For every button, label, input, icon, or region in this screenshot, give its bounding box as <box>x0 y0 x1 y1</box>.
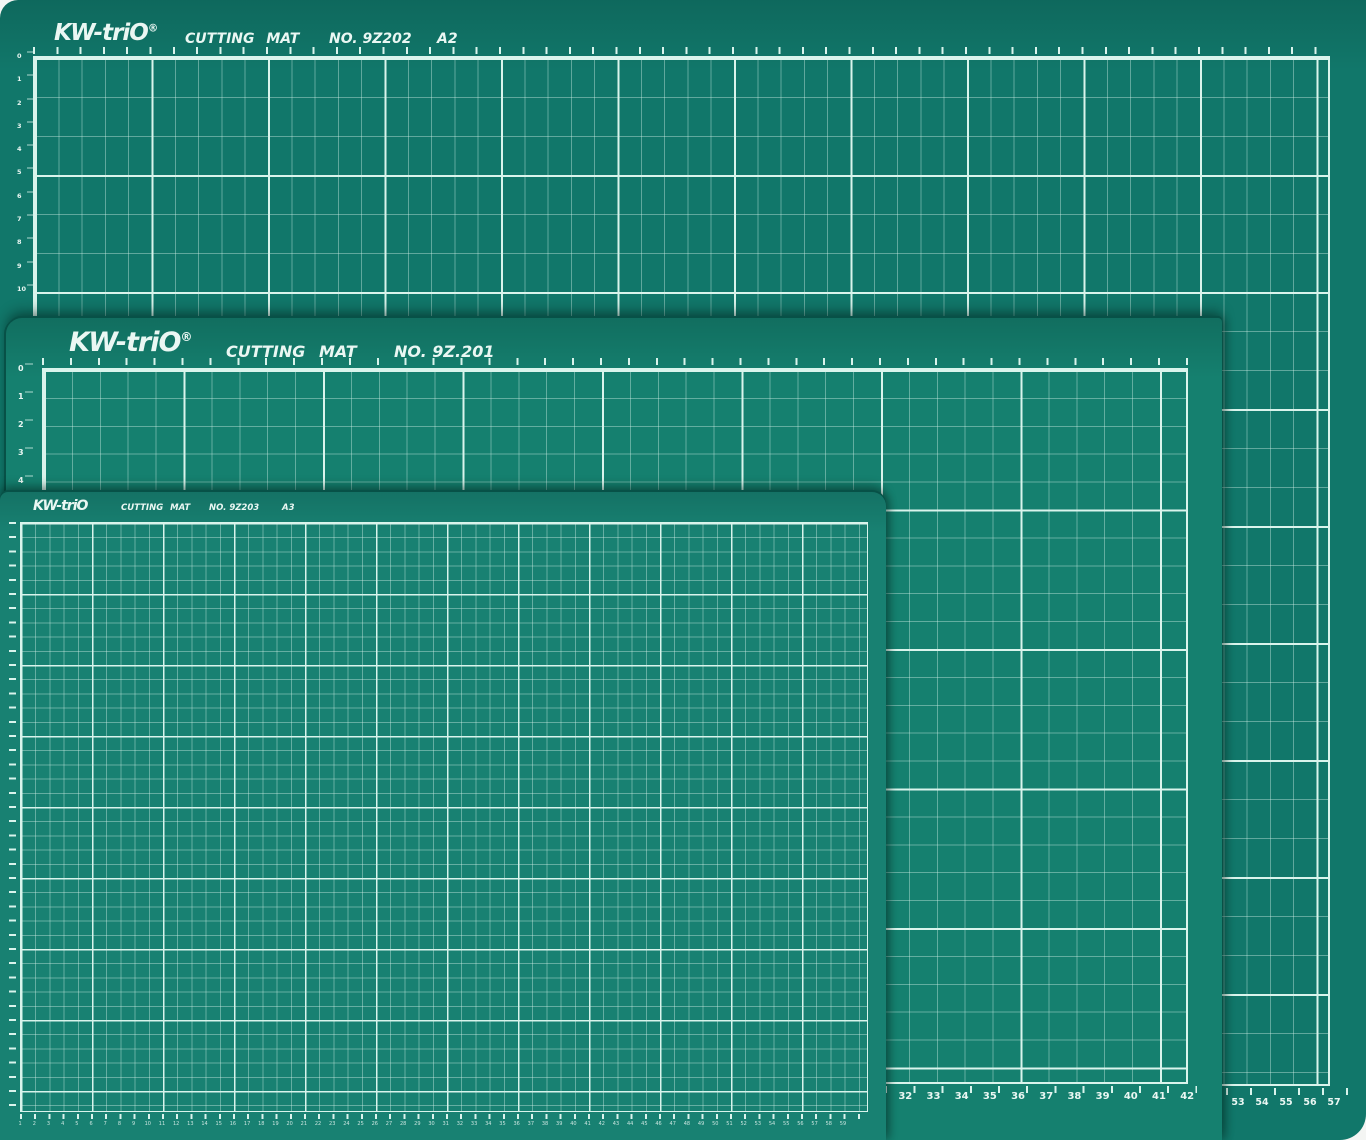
ruler-number: 37 <box>1032 1091 1060 1102</box>
ruler-number: 53 <box>751 1121 765 1127</box>
top-tick-marks-a2 <box>33 47 1330 54</box>
ruler-number: 29 <box>410 1121 424 1127</box>
ruler-number: 22 <box>311 1121 325 1127</box>
ruler-number: 0 <box>17 52 26 75</box>
ruler-number: 55 <box>1274 1097 1298 1108</box>
ruler-number: 10 <box>17 285 26 308</box>
ruler-number: 23 <box>325 1121 339 1127</box>
ruler-number: 52 <box>737 1121 751 1127</box>
ruler-number: 40 <box>1117 1091 1145 1102</box>
ruler-number: 31 <box>439 1121 453 1127</box>
bottom-ruler-a2: 5354555657 <box>1226 1097 1346 1108</box>
ruler-number: 30 <box>424 1121 438 1127</box>
ruler-number: 21 <box>297 1121 311 1127</box>
model-number: NO. 9Z203 <box>209 503 259 513</box>
ruler-number: 19 <box>268 1121 282 1127</box>
ruler-number: 28 <box>396 1121 410 1127</box>
registered-mark: ® <box>180 330 192 344</box>
product-title: CUTTING MAT <box>121 503 190 513</box>
brand-name: KW-triO <box>69 327 180 358</box>
ruler-number: 20 <box>283 1121 297 1127</box>
ruler-number: 26 <box>368 1121 382 1127</box>
ruler-number: 35 <box>976 1091 1004 1102</box>
ruler-number: 42 <box>1173 1091 1201 1102</box>
model-number: NO. 9Z202 <box>329 31 412 47</box>
brand-logo: KW-triO® <box>54 20 158 46</box>
ruler-number: 1 <box>13 1121 27 1127</box>
brand-name: KW-triO <box>33 498 87 514</box>
ruler-number: 35 <box>495 1121 509 1127</box>
ruler-number: 3 <box>18 448 24 476</box>
ruler-number: 39 <box>1089 1091 1117 1102</box>
ruler-number: 24 <box>339 1121 353 1127</box>
ruler-number: 9 <box>17 262 26 285</box>
ruler-number: 27 <box>382 1121 396 1127</box>
ruler-number: 39 <box>552 1121 566 1127</box>
ruler-number: 53 <box>1226 1097 1250 1108</box>
left-tick-marks-a3 <box>9 522 16 1112</box>
ruler-number: 57 <box>1322 1097 1346 1108</box>
ruler-number: 33 <box>467 1121 481 1127</box>
ruler-number: 18 <box>254 1121 268 1127</box>
ruler-number: 7 <box>17 215 26 238</box>
ruler-number: 1 <box>17 75 26 98</box>
ruler-number: 55 <box>779 1121 793 1127</box>
ruler-number: 15 <box>212 1121 226 1127</box>
ruler-number: 6 <box>17 192 26 215</box>
ruler-number: 49 <box>694 1121 708 1127</box>
ruler-number: 58 <box>822 1121 836 1127</box>
top-tick-marks-a1 <box>42 358 1188 365</box>
ruler-number: 46 <box>651 1121 665 1127</box>
bottom-ruler-a3: 1234567891011121314151617181920212223242… <box>13 1121 850 1127</box>
ruler-number: 41 <box>1145 1091 1173 1102</box>
ruler-number: 5 <box>70 1121 84 1127</box>
ruler-number: 13 <box>183 1121 197 1127</box>
ruler-number: 32 <box>453 1121 467 1127</box>
bottom-tick-marks-a2 <box>1226 1088 1348 1095</box>
ruler-number: 54 <box>765 1121 779 1127</box>
ruler-number: 36 <box>1004 1091 1032 1102</box>
ruler-number: 0 <box>18 364 24 392</box>
ruler-number: 40 <box>566 1121 580 1127</box>
ruler-number: 33 <box>919 1091 947 1102</box>
ruler-number: 48 <box>680 1121 694 1127</box>
ruler-number: 12 <box>169 1121 183 1127</box>
ruler-number: 45 <box>637 1121 651 1127</box>
brand-logo: KW-triO® <box>69 327 193 358</box>
bottom-tick-marks-a3 <box>20 1114 868 1119</box>
ruler-number: 54 <box>1250 1097 1274 1108</box>
ruler-number: 47 <box>666 1121 680 1127</box>
ruler-number: 8 <box>112 1121 126 1127</box>
ruler-number: 8 <box>17 238 26 261</box>
ruler-number: 11 <box>155 1121 169 1127</box>
ruler-number: 17 <box>240 1121 254 1127</box>
brand-logo: KW-triO <box>33 498 87 514</box>
ruler-number: 32 <box>891 1091 919 1102</box>
ruler-number: 2 <box>17 99 26 122</box>
product-title: CUTTING MAT <box>185 31 299 47</box>
ruler-number: 51 <box>722 1121 736 1127</box>
ruler-number: 14 <box>197 1121 211 1127</box>
ruler-number: 36 <box>510 1121 524 1127</box>
ruler-number: 42 <box>595 1121 609 1127</box>
ruler-number: 9 <box>127 1121 141 1127</box>
ruler-number: 41 <box>581 1121 595 1127</box>
ruler-number: 3 <box>17 122 26 145</box>
ruler-number: 57 <box>808 1121 822 1127</box>
ruler-number: 38 <box>1060 1091 1088 1102</box>
ruler-number: 2 <box>27 1121 41 1127</box>
ruler-number: 34 <box>948 1091 976 1102</box>
size-label: A2 <box>437 31 458 47</box>
size-label: A3 <box>282 503 295 513</box>
ruler-number: 38 <box>538 1121 552 1127</box>
ruler-number: 25 <box>354 1121 368 1127</box>
ruler-number: 2 <box>18 420 24 448</box>
ruler-number: 6 <box>84 1121 98 1127</box>
ruler-number: 34 <box>481 1121 495 1127</box>
ruler-number: 56 <box>793 1121 807 1127</box>
ruler-number: 5 <box>17 168 26 191</box>
bottom-ruler-a1: 313233343536373839404142 <box>863 1091 1201 1102</box>
cutting-mats-product-photo: KW-triO® CUTTING MAT NO. 9Z202 A2 012345… <box>0 0 1366 1140</box>
ruler-number: 10 <box>141 1121 155 1127</box>
ruler-number: 59 <box>836 1121 850 1127</box>
left-ruler-a2: 012345678910 <box>17 52 26 308</box>
ruler-number: 56 <box>1298 1097 1322 1108</box>
ruler-number: 3 <box>41 1121 55 1127</box>
ruler-number: 4 <box>17 145 26 168</box>
ruler-number: 50 <box>708 1121 722 1127</box>
brand-name: KW-triO <box>54 20 148 46</box>
ruler-number: 37 <box>524 1121 538 1127</box>
ruler-number: 7 <box>98 1121 112 1127</box>
left-ruler-a1: 01234 <box>18 364 24 503</box>
ruler-number: 4 <box>56 1121 70 1127</box>
registered-mark: ® <box>148 22 158 34</box>
ruler-number: 43 <box>609 1121 623 1127</box>
ruler-number: 44 <box>623 1121 637 1127</box>
cutting-mat-small-a3: KW-triO CUTTING MAT NO. 9Z203 A3 1234567… <box>0 492 886 1140</box>
ruler-number: 1 <box>18 392 24 420</box>
grid-surface-a3 <box>20 522 868 1112</box>
ruler-number: 16 <box>226 1121 240 1127</box>
